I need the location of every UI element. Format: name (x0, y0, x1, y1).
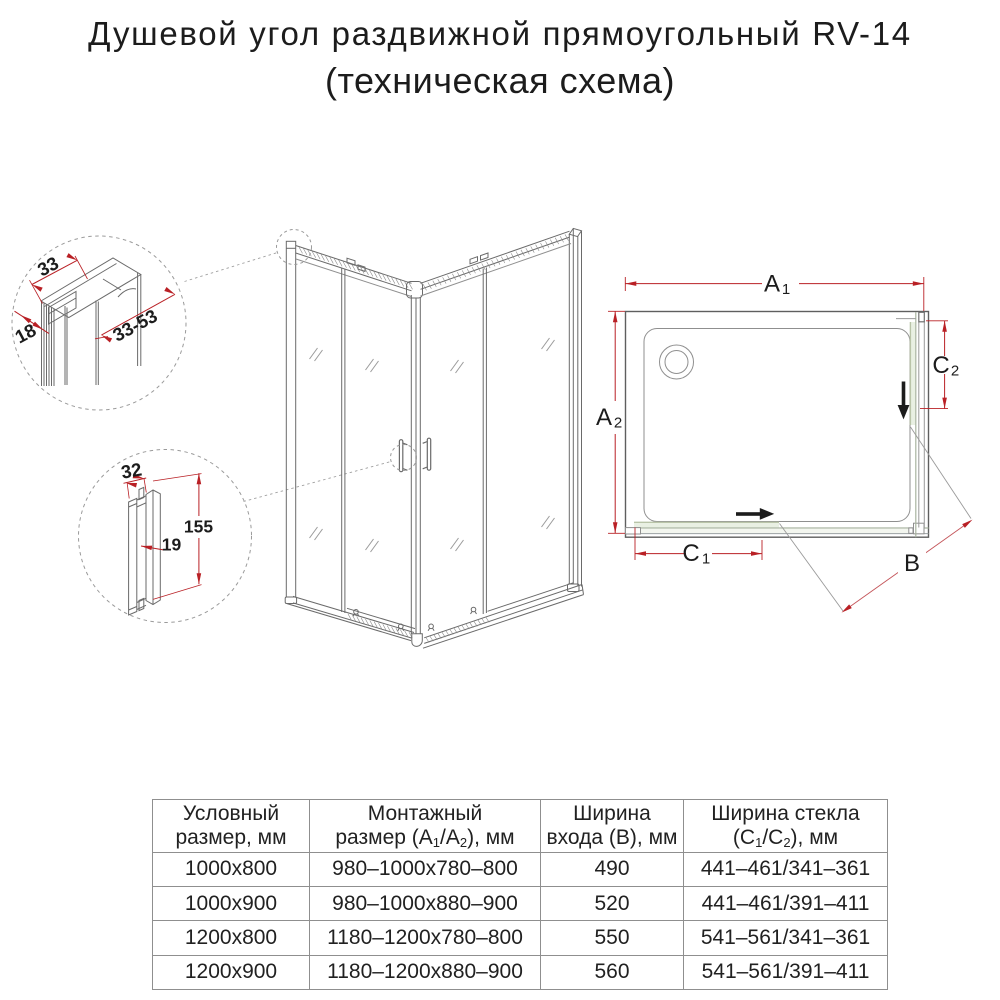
svg-text:33: 33 (34, 252, 62, 280)
svg-text:А: А (596, 404, 612, 431)
svg-text:С: С (932, 352, 949, 379)
svg-text:В: В (904, 550, 920, 577)
svg-text:32: 32 (119, 458, 143, 482)
svg-text:1: 1 (782, 281, 790, 298)
svg-text:19: 19 (162, 535, 182, 555)
svg-text:2: 2 (951, 363, 959, 380)
svg-text:1: 1 (702, 551, 710, 568)
svg-text:А: А (764, 271, 780, 298)
svg-text:С: С (682, 540, 699, 567)
svg-text:33-53: 33-53 (109, 305, 161, 346)
svg-text:2: 2 (614, 415, 622, 432)
svg-text:155: 155 (184, 517, 213, 537)
